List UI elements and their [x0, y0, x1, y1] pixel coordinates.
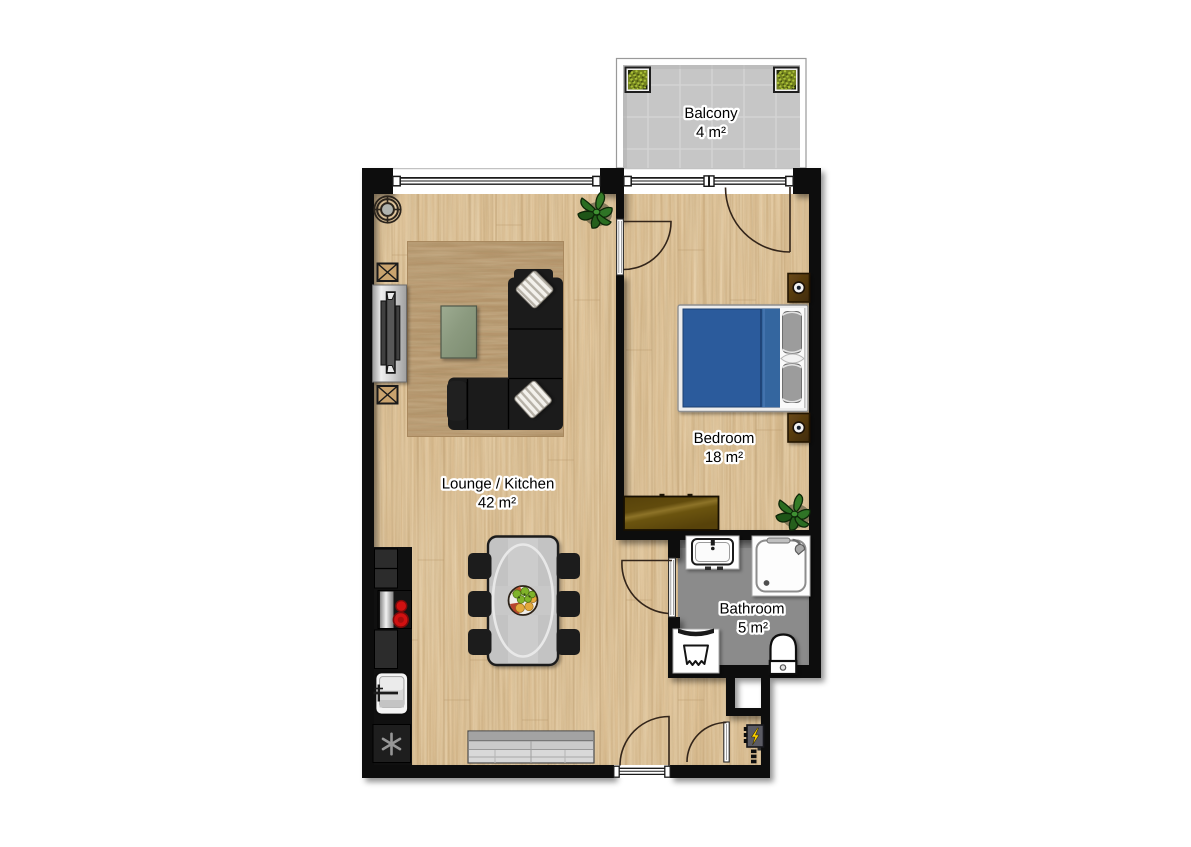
svg-text:42 m²: 42 m²	[478, 495, 516, 512]
svg-text:Lounge / Kitchen: Lounge / Kitchen	[442, 476, 555, 493]
svg-text:4 m²: 4 m²	[696, 124, 726, 141]
svg-text:Bedroom: Bedroom	[694, 430, 755, 447]
svg-text:Bathroom: Bathroom	[719, 601, 784, 618]
svg-text:18 m²: 18 m²	[705, 449, 743, 466]
svg-text:5 m²: 5 m²	[738, 620, 768, 637]
svg-text:Balcony: Balcony	[684, 105, 738, 122]
